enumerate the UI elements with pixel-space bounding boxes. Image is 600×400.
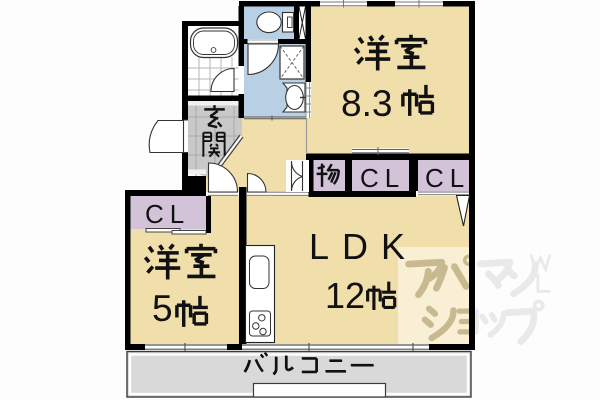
svg-text:5: 5 [152, 288, 173, 329]
svg-text:LDK: LDK [309, 226, 418, 267]
svg-text:CL: CL [360, 163, 405, 193]
svg-text:CL: CL [145, 199, 190, 229]
svg-text:8.3: 8.3 [341, 83, 392, 124]
svg-text:12: 12 [325, 275, 365, 316]
svg-text:CL: CL [425, 163, 470, 193]
